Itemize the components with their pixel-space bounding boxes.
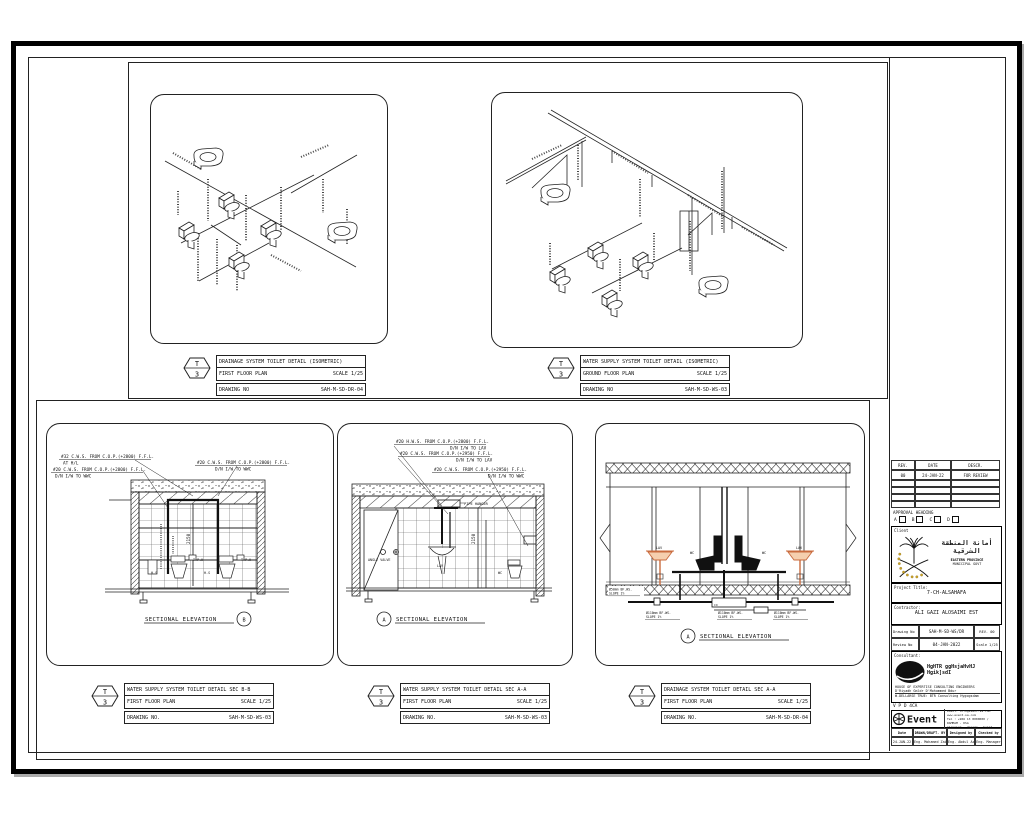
title-block-table: WATER SUPPLY SYSTEM TOILET DETAIL (ISOME… <box>580 355 730 396</box>
staff-h-checked: Checked by <box>975 728 1002 737</box>
lavatories <box>646 551 814 585</box>
vendor-contact1: Email: info@event-sa.com www.event-sa.co… <box>947 709 1001 717</box>
detail-hexagon-symbol: T 3 <box>90 683 120 709</box>
caption-text: SECTIONAL ELEVATION <box>145 617 217 623</box>
staff-v-date: 24-JAN-22 <box>891 737 913 746</box>
title-block-table: DRAINAGE SYSTEM TOILET DETAIL SEC A-A FI… <box>661 683 811 724</box>
section-bubble: A <box>382 618 386 624</box>
drawing-title: DRAINAGE SYSTEM TOILET DETAIL (ISOMETRIC… <box>216 355 366 368</box>
drawing-title: WATER SUPPLY SYSTEM TOILET DETAIL SEC A-… <box>400 683 550 696</box>
drawing-title: DRAINAGE SYSTEM TOILET DETAIL SEC A-A <box>661 683 811 696</box>
detail-hexagon-symbol: T 3 <box>627 683 657 709</box>
drawing-no-value: SAH-M-SD-DR-04 <box>766 712 808 723</box>
checkbox-c <box>934 516 941 523</box>
date-col-header: DATE <box>915 460 951 470</box>
svg-text:3: 3 <box>559 371 563 379</box>
review-no-row: Review No 04-JAN-2022 Scale 1/25 <box>891 638 1002 651</box>
iso-fixtures <box>179 148 357 279</box>
consultant-box: Consultant: HCE HgHTR ggHsjaHvHJ Hgik]sd… <box>891 651 1002 703</box>
drawing-no-label: DRAWING NO <box>583 384 613 395</box>
fixture-label: WC <box>498 571 502 575</box>
caption-text: SECTIONAL ELEVATION <box>700 634 772 640</box>
client-line2: MUNICIPAL GOVT <box>934 562 1000 566</box>
revision-row-empty <box>891 487 1002 494</box>
staff-v-drawn: Eng. Mohamed Zain <box>913 737 947 746</box>
consultant-line3: W.DELLARSE TRUE: BTR Consulting Hygogsda… <box>895 693 1000 698</box>
section-aa-ws-svg: #20 H.W.S. FROM C.O.P.(+2800) F.F.L. D/N… <box>338 424 572 665</box>
annotation: D/N I/W TO LAV <box>456 458 493 464</box>
fixture-label: H.S <box>204 571 210 575</box>
client-name-arabic: أمانة المنطقة الشرقية <box>934 539 1000 555</box>
meta-table: Drawing No SAH-M-SD-WS/DR REV. 00 Review… <box>891 625 1002 651</box>
pipe-label: SLOPE 1% <box>646 615 661 619</box>
room-structure <box>346 484 552 602</box>
pipe-label: SLOPE 1% <box>609 592 624 596</box>
dimension: 2150 <box>186 533 191 544</box>
scale-label: SCALE 1/25 <box>241 696 271 708</box>
svg-text:T: T <box>195 360 200 368</box>
scale-label: SCALE 1/25 <box>517 696 547 708</box>
client-box: Client أمانة المنطقة الشرقية EASTERN PRO… <box>891 526 1002 583</box>
pipe-label: SLOPE 1% <box>718 615 733 619</box>
section-bb-drawing: #32 C.W.S. FROM C.O.P.(+2800) F.F.L. AT … <box>46 423 334 666</box>
section-bubble: B <box>242 618 245 624</box>
hce-logo: HCE <box>895 660 925 684</box>
annotation: D/N I/W TO WWC <box>55 474 92 480</box>
fixture-label: WC <box>762 551 766 555</box>
revision-row-empty <box>891 480 1002 487</box>
iso-watersupply-drawing <box>491 92 803 348</box>
drawing-no-value: SAH-M-SD-WS-03 <box>505 712 547 723</box>
vendor-contact2: Tel : +966 13 8000000 / DAMMAM - KSA <box>947 717 1001 725</box>
section-bb-svg: #32 C.W.S. FROM C.O.P.(+2800) F.F.L. AT … <box>47 424 333 665</box>
title-block-sec-aa-ws: T 3 WATER SUPPLY SYSTEM TOILET DETAIL SE… <box>366 683 550 724</box>
fixture-label: LAV <box>437 564 443 568</box>
checkbox-b <box>916 516 923 523</box>
title-block-iso-drainage: T 3 DRAINAGE SYSTEM TOILET DETAIL (ISOME… <box>182 355 366 396</box>
fixture-label: H.S <box>151 571 157 575</box>
pipe-hanger-label: PIPE HANGER <box>464 502 489 506</box>
detail-hexagon-symbol: T 3 <box>546 355 576 381</box>
drawing-title: WATER SUPPLY SYSTEM TOILET DETAIL SEC B-… <box>124 683 274 696</box>
fixture-label: LAV <box>656 546 662 550</box>
title-block-table: DRAINAGE SYSTEM TOILET DETAIL (ISOMETRIC… <box>216 355 366 396</box>
contractor-value: ALI GAZI ALOSAIMI EST <box>892 610 1001 616</box>
iso-watersupply-svg <box>492 93 802 347</box>
staff-v-designed: Eng. Abdul Aziz <box>947 737 975 746</box>
drawing-no-label: DRAWING NO. <box>127 712 160 723</box>
floor-label: FIRST FLOOR PLAN <box>664 696 712 708</box>
project-title-value: 7-CH-ALSAHAFA <box>892 590 1001 596</box>
contractor-box: Contractor: ALI GAZI ALOSAIMI EST <box>891 603 1002 625</box>
annotation: #32 C.W.S. FROM C.O.P.(+2800) F.F.L. <box>61 454 154 460</box>
svg-text:Event: Event <box>907 715 937 726</box>
consultant-name: HgHTR ggHsjaHvHJ Hgik]sdI <box>927 664 1001 676</box>
revision-table: REV. DATE DESCR. 00 24-JAN-22 FOR REVIEW <box>891 460 1002 508</box>
drain-pipes <box>165 155 357 281</box>
revision-header-row: REV. DATE DESCR. <box>891 460 1002 470</box>
title-block-sec-bb: T 3 WATER SUPPLY SYSTEM TOILET DETAIL SE… <box>90 683 274 724</box>
iso-drainage-drawing <box>150 94 388 344</box>
svg-text:HCE: HCE <box>901 668 919 678</box>
fixture-label: T.P.H <box>241 558 251 562</box>
fixture-label: WC <box>690 551 694 555</box>
staff-h-designed: Designed by <box>947 728 975 737</box>
fixture-label: T.P.H <box>193 558 203 562</box>
title-block-table: WATER SUPPLY SYSTEM TOILET DETAIL SEC A-… <box>400 683 550 724</box>
traps <box>657 574 803 579</box>
fixture-label: LAV <box>796 546 802 550</box>
drawing-sheet-page: #32 C.W.S. FROM C.O.P.(+2800) F.F.L. AT … <box>0 0 1024 819</box>
caption: A SECTIONAL ELEVATION <box>377 612 485 626</box>
title-block-panel: REV. DATE DESCR. 00 24-JAN-22 FOR REVIEW… <box>891 460 1002 746</box>
section-aa-dr-drawing: LAV LAV WC WC CO Ø50mm BF.WS. SLOPE 1% Ø… <box>595 423 865 666</box>
revision-row-empty <box>891 501 1002 508</box>
svg-text:T: T <box>103 688 108 696</box>
staff-table: Date DRAWN/DRAFT. BY Designed by Checked… <box>891 728 1002 746</box>
caption: SECTIONAL ELEVATION B <box>144 612 251 626</box>
detail-hexagon-symbol: T 3 <box>182 355 212 381</box>
scale-label: SCALE 1/25 <box>333 368 363 380</box>
floor-label: FIRST FLOOR PLAN <box>403 696 451 708</box>
slab-structure <box>600 463 856 595</box>
svg-text:T: T <box>559 360 564 368</box>
approval-option-d: D <box>947 518 950 523</box>
svg-text:3: 3 <box>195 371 199 379</box>
staff-h-drawn: DRAWN/DRAFT. BY <box>913 728 947 737</box>
staff-v-checked: Eng. Manager <box>975 737 1002 746</box>
svg-text:T: T <box>640 688 645 696</box>
event-logo: Event <box>892 712 944 726</box>
staff-h-date: Date <box>891 728 913 737</box>
annotation: #20 C.W.S. FROM C.O.P.(+2950) F.F.L. <box>434 467 527 473</box>
annotation: #20 C.W.S. FROM C.O.P.(+2950) F.F.L. <box>400 451 493 457</box>
pipe-label: SLOPE 1% <box>774 615 789 619</box>
svg-text:3: 3 <box>640 699 644 707</box>
angle-valve-label: ANGLE VALVE <box>368 558 390 562</box>
client-label: Client <box>892 527 1001 533</box>
svg-text:T: T <box>379 688 384 696</box>
annotation: #20 C.W.S. FROM C.O.P.(+2800) F.F.L. <box>53 467 146 473</box>
checkbox-d <box>952 516 959 523</box>
approval-checkboxes: A B C D <box>891 515 1002 524</box>
checkbox-a <box>899 516 906 523</box>
vendor-box: Event Email: info@event-sa.com www.event… <box>891 710 1002 728</box>
scale-label: SCALE 1/25 <box>697 368 727 380</box>
caption: A SECTIONAL ELEVATION <box>681 629 789 643</box>
svg-text:3: 3 <box>103 699 107 707</box>
drawing-no-value: SAH-M-SD-WS-03 <box>229 712 271 723</box>
consultant-label: Consultant: <box>892 652 1001 658</box>
descr-col-header: DESCR. <box>951 460 1000 470</box>
floor-label: FIRST FLOOR PLAN <box>219 368 267 380</box>
iso-drainage-svg <box>151 95 387 343</box>
fixture-label: CO <box>714 603 718 607</box>
floor-label: GROUND FLOOR PLAN <box>583 368 634 380</box>
drawing-no-label: DRAWING NO <box>219 384 249 395</box>
section-aa-dr-svg: LAV LAV WC WC CO Ø50mm BF.WS. SLOPE 1% Ø… <box>596 424 864 665</box>
rev-col-header: REV. <box>891 460 915 470</box>
drawing-no-row: Drawing No SAH-M-SD-WS/DR REV. 00 <box>891 625 1002 638</box>
drawing-no-label: DRAWING NO. <box>403 712 436 723</box>
pipe-annotations <box>532 145 774 291</box>
drawing-no-label: DRAWING NO. <box>664 712 697 723</box>
annotation: D/N I/W TO WWC <box>488 474 525 480</box>
approval-option-a: A <box>894 518 897 523</box>
drawing-no-value: SAH-M-SD-DR-04 <box>321 384 363 395</box>
room-structure <box>105 480 289 603</box>
annotation: D/N I/W TO WWC <box>215 467 252 473</box>
section-aa-ws-drawing: #20 H.W.S. FROM C.O.P.(+2800) F.F.L. D/N… <box>337 423 573 666</box>
approval-option-c: C <box>929 518 932 523</box>
svg-text:3: 3 <box>379 699 383 707</box>
annotation: #20 H.W.S. FROM C.O.P.(+2800) F.F.L. <box>396 439 489 445</box>
project-title-box: Project Title: 7-CH-ALSAHAFA <box>891 583 1002 603</box>
drawing-no-value: SAH-M-SD-WS-03 <box>685 384 727 395</box>
saudi-emblem-logo <box>896 535 932 579</box>
scale-label: SCALE 1/25 <box>778 696 808 708</box>
approval-option-b: B <box>912 518 915 523</box>
section-bubble: A <box>686 635 690 641</box>
title-block-iso-watersupply: T 3 WATER SUPPLY SYSTEM TOILET DETAIL (I… <box>546 355 730 396</box>
floor-label: FIRST FLOOR PLAN <box>127 696 175 708</box>
detail-hexagon-symbol: T 3 <box>366 683 396 709</box>
title-block-sec-aa-dr: T 3 DRAINAGE SYSTEM TOILET DETAIL SEC A-… <box>627 683 811 724</box>
revision-row: 00 24-JAN-22 FOR REVIEW <box>891 470 1002 480</box>
drawing-title: WATER SUPPLY SYSTEM TOILET DETAIL (ISOME… <box>580 355 730 368</box>
panel-divider <box>889 57 890 751</box>
annotation: #20 C.W.S. FROM C.O.P.(+2800) F.F.L. <box>197 460 290 466</box>
dimension: 2150 <box>471 533 476 544</box>
title-block-table: WATER SUPPLY SYSTEM TOILET DETAIL SEC B-… <box>124 683 274 724</box>
annotation: AT H/L <box>63 461 79 467</box>
caption-text: SECTIONAL ELEVATION <box>396 617 468 623</box>
revision-row-empty <box>891 494 1002 501</box>
annotation: D/N I/W TO LAV <box>450 446 487 452</box>
iso-fixtures <box>541 184 728 317</box>
